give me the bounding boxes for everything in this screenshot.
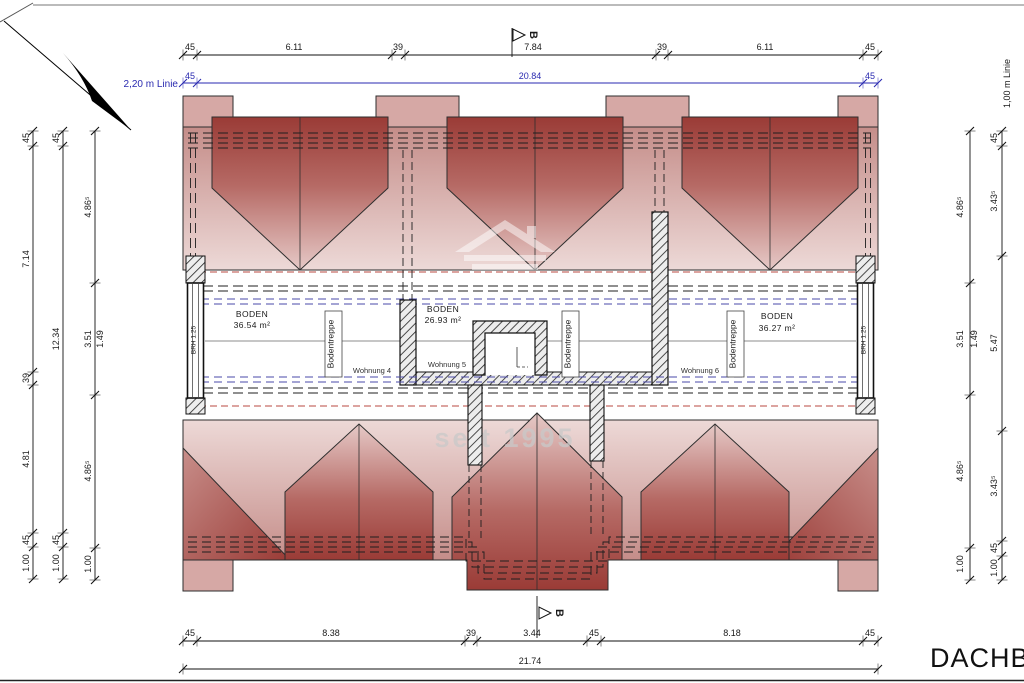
sill-height-label: BRH 1.25: [191, 326, 198, 355]
dim-labels-right-outer: 45 3.43⁵ 5.47 3.43⁵ 45 1.00: [989, 133, 999, 577]
dim-label: 3.43⁵: [989, 190, 999, 212]
stairwell-walls: [473, 321, 547, 375]
dim-label: 4.81: [21, 450, 31, 468]
north-arrow-icon: [4, 21, 131, 130]
dim-labels-bottom: 45 8.38 39 3.44 45 8.18 45: [185, 628, 875, 638]
room-area: 26.93 m²: [425, 315, 462, 325]
dim-label: 45: [589, 628, 599, 638]
dim-label: 8.38: [322, 628, 340, 638]
dim-label: 12.34: [51, 328, 61, 351]
dim-label: 45: [185, 42, 195, 52]
dim-label: 4.86⁵: [83, 460, 93, 482]
dim-label: 3.44: [523, 628, 541, 638]
line-100-label: 1,00 m Linie: [1002, 59, 1012, 108]
dim-label: 39: [657, 42, 667, 52]
unit-label: Wohnung 5: [428, 360, 466, 369]
bodentreppe-label: Bodentreppe: [728, 319, 738, 368]
bodentreppe-label: Bodentreppe: [326, 319, 336, 368]
dim-label: 45: [51, 133, 61, 143]
dim-label: 20.84: [519, 71, 542, 81]
dim-label: 45: [989, 133, 999, 143]
unit-label: Wohnung 6: [681, 366, 719, 375]
dim-label: 8.18: [723, 628, 741, 638]
room-name: BODEN: [427, 304, 459, 314]
floor-plan-sheet: seit 1995: [0, 0, 1024, 683]
section-letter: B: [527, 31, 539, 39]
dim-label: 4.86⁵: [83, 196, 93, 218]
dim-labels-left-outer: 45 7.14 39 4.81 45 1.00: [21, 133, 31, 572]
watermark-text: seit 1995: [434, 423, 575, 453]
dim-label: 7.14: [21, 250, 31, 268]
dim-label: 39: [21, 373, 31, 383]
sill-height-label: BRH 1.25: [861, 326, 868, 355]
dim-label: 39: [466, 628, 476, 638]
dim-labels-left-inner: 4.86⁵ 3.51 1.49 4.86⁵ 1.00: [83, 196, 105, 573]
dim-label: 1.00: [955, 555, 965, 573]
unit-label: Wohnung 4: [353, 366, 391, 375]
section-letter: B: [553, 609, 565, 617]
bodentreppe-label: Bodentreppe: [563, 319, 573, 368]
dim-label: 1.00: [51, 554, 61, 572]
dim-label: 1.00: [989, 559, 999, 577]
plan-drawing: seit 1995: [0, 0, 1024, 683]
room-name: BODEN: [761, 311, 793, 321]
dim-label: 1.49: [969, 330, 979, 348]
dim-label-total: 21.74: [519, 656, 542, 666]
dim-label: 3.51: [955, 330, 965, 348]
drawing-title: DACHBODEN: [930, 643, 1024, 673]
dim-label: 1.00: [83, 555, 93, 573]
dim-label: 45: [865, 71, 875, 81]
room-area: 36.54 m²: [234, 320, 271, 330]
dim-label: 45: [185, 628, 195, 638]
dim-label: 3.51: [83, 330, 93, 348]
dim-label: 6.11: [286, 42, 303, 52]
dim-label: 5.47: [989, 334, 999, 352]
section-marker-bottom: B: [537, 596, 565, 638]
dim-label: 45: [865, 628, 875, 638]
dim-label: 45: [21, 535, 31, 545]
dim-label: 7.84: [524, 42, 542, 52]
dim-label: 45: [51, 535, 61, 545]
dim-label: 45: [185, 71, 195, 81]
window-wall-right: BRH 1.25: [856, 256, 875, 414]
sheet-corner-line: [0, 3, 33, 22]
dim-label: 45: [865, 42, 875, 52]
dim-labels-220: 45 20.84 45 2,20 m Linie: [124, 71, 875, 90]
line-220-label: 2,20 m Linie: [124, 79, 179, 90]
dim-label: 3.43⁵: [989, 475, 999, 497]
dim-labels-left-mid: 45 12.34 45 1.00: [51, 133, 61, 572]
dim-label: 4.86⁵: [955, 196, 965, 218]
window-wall-left: BRH 1.25: [186, 256, 205, 414]
dim-labels-top: 45 6.11 39 7.84 39 6.11 45: [185, 42, 875, 52]
dim-label: 1.49: [95, 330, 105, 348]
dim-label: 6.11: [757, 42, 774, 52]
dim-label: 45: [21, 133, 31, 143]
room-area: 36.27 m²: [759, 323, 796, 333]
dim-label: 45: [989, 543, 999, 553]
dim-label: 4.86⁵: [955, 460, 965, 482]
dim-labels-right-inner: 4.86⁵ 3.51 1.49 4.86⁵ 1.00: [955, 196, 979, 573]
room-name: BODEN: [236, 309, 268, 319]
dim-label: 39: [393, 42, 403, 52]
dim-label: 1.00: [21, 554, 31, 572]
